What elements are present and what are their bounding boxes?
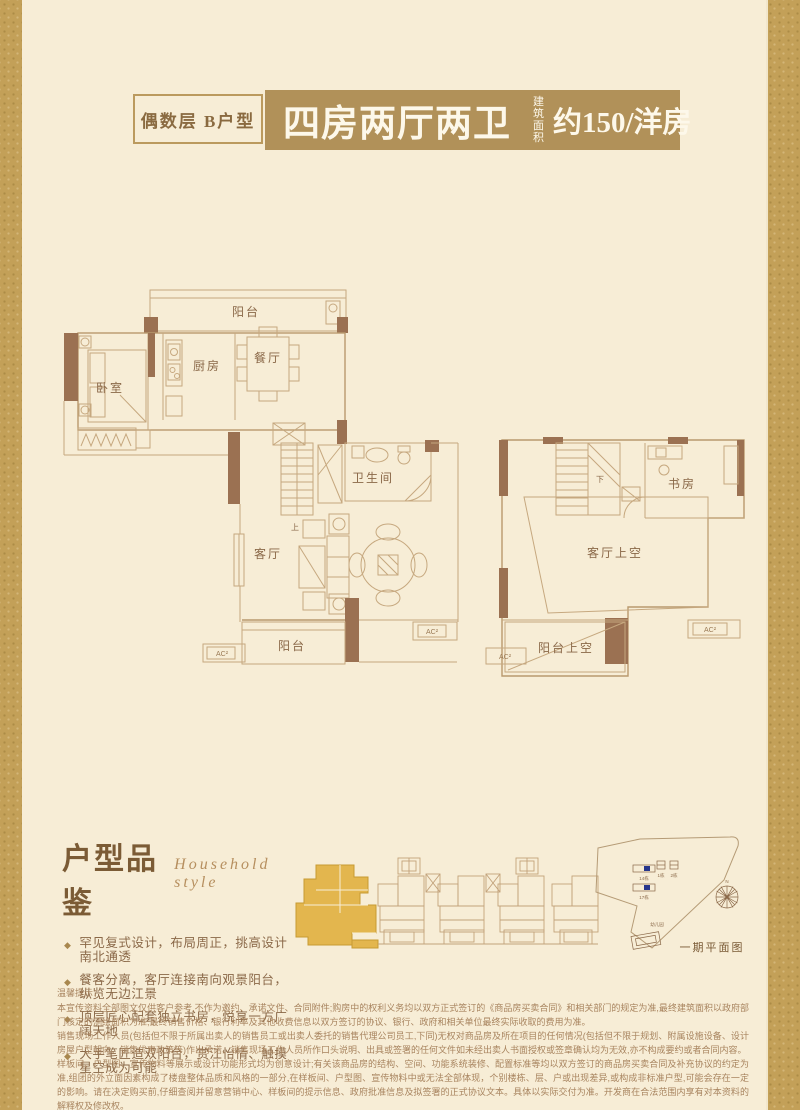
ac-platform-label: AC² (426, 629, 439, 636)
unit-type-label: 偶数层 B户型 (141, 107, 256, 132)
appreciation-title: 户型品鉴 (62, 834, 164, 922)
header-banner: 四房两厅两卫 建筑 面积 约150/洋房 (265, 90, 680, 150)
flyer-page: 偶数层 B户型 四房两厅两卫 建筑 面积 约150/洋房 阳台 (0, 0, 800, 1110)
room-label-dining: 餐厅 (254, 350, 282, 365)
room-label-balcony-bottom: 阳台 (278, 638, 306, 653)
room-label-living: 客厅 (254, 546, 282, 561)
room-label-study: 书房 (668, 476, 696, 491)
room-label-bathroom: 卫生间 (352, 471, 394, 485)
ac-platform-label: AC² (704, 627, 717, 634)
stairs-down-label: 下 (596, 475, 604, 484)
layout-title: 四房两厅两卫 (283, 93, 511, 147)
disclaimer-title: 温馨提示： (57, 986, 749, 1000)
building-label: 2栋 (670, 872, 678, 879)
siteplan: 14栋 1栋 2栋 17栋 幼儿园 N 一期平面图 (595, 823, 765, 971)
keyplan-strip (293, 853, 602, 957)
siteplan-caption: 一期平面图 (680, 941, 745, 954)
area-value: 约150/洋房 (553, 99, 692, 141)
left-pattern-border (0, 0, 22, 1110)
compass-icon: N (716, 879, 738, 908)
room-label-balcony-void: 阳台上空 (538, 640, 594, 655)
stairs-up-label: 上 (291, 523, 299, 532)
disclaimer: 温馨提示： 本宣传资料全部图文仅供客户参考,不作为邀约、承诺文件、合同附件;购房… (57, 986, 749, 1110)
floorplan-drawing: 阳台 卧室 厨房 (60, 280, 760, 680)
room-label-bedroom: 卧室 (96, 380, 124, 395)
room-label-balcony-top: 阳台 (232, 304, 260, 319)
disclaimer-paragraph: 本宣传资料全部图文仅供客户参考,不作为邀约、承诺文件、合同附件;购房中的权利义务… (57, 1001, 749, 1029)
building-label: 1栋 (657, 872, 665, 879)
building-label: 14栋 (639, 875, 649, 882)
floorplan-lower: 阳台 卧室 厨房 (64, 290, 458, 664)
room-label-living-void: 客厅上空 (587, 545, 643, 560)
right-pattern-border (766, 0, 800, 1110)
appreciation-subtitle: Household style (174, 856, 292, 892)
unit-type-tag: 偶数层 B户型 (133, 94, 263, 144)
disclaimer-paragraph: 销售现场工作人员(包括但不限于所属出卖人的销售员工或出卖人委托的销售代理公司员工… (57, 1029, 749, 1057)
room-label-kitchen: 厨房 (193, 358, 221, 373)
building-label: 17栋 (639, 894, 649, 901)
list-item: ◆罕见复式设计，布局周正，挑高设计南北通透 (62, 936, 292, 964)
ac-platform-label: AC² (499, 654, 512, 661)
ac-platform-label: AC² (216, 651, 229, 658)
floorplan-upper: 下 书房 客厅上空 阳台上空 AC² AC² (486, 437, 744, 676)
kindergarten-label: 幼儿园 (650, 921, 664, 928)
disclaimer-paragraph: 样板间、户型图、宣传物料等展示或设计功能形式均为创意设计;有关该商品房的结构、空… (57, 1057, 749, 1110)
north-label: N (725, 879, 728, 884)
diamond-bullet-icon: ◆ (64, 938, 71, 952)
area-label: 建筑 面积 (533, 96, 545, 144)
